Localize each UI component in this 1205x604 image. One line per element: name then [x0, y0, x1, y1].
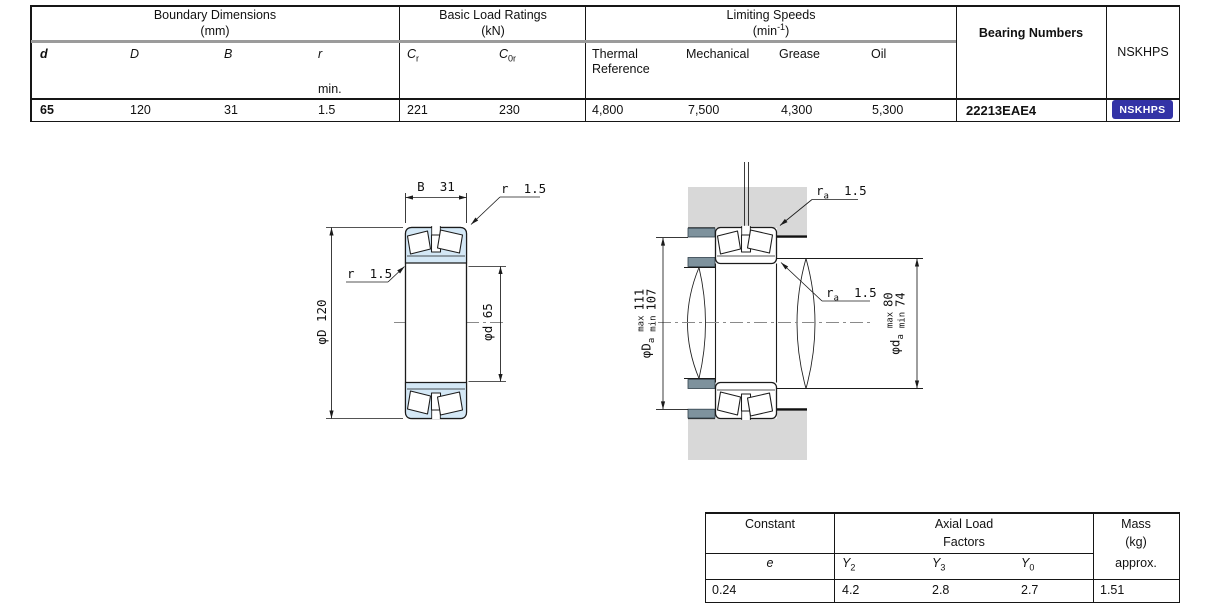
constant-header: Constant [705, 517, 835, 532]
table-border-bottom [30, 121, 1180, 123]
data-row-separator [30, 98, 1180, 100]
header-separator [31, 40, 956, 43]
value-grease: 4,300 [781, 103, 812, 118]
table-border-top [30, 5, 1180, 7]
col-header-cr: Cr [407, 47, 419, 62]
col-header-thermal: Thermal Reference [592, 47, 650, 77]
fillet-radius-label: ra 1.5 [816, 184, 867, 198]
chamfer-dimension-label: r 1.5 [347, 267, 392, 281]
data-row-separator [705, 579, 1180, 580]
value-B: 31 [224, 103, 238, 118]
value-y2: 4.2 [842, 583, 859, 598]
col-header-grease: Grease [779, 47, 820, 62]
col-header-r: r [318, 47, 322, 62]
col-header-y0: Y0 [1021, 556, 1034, 571]
table-divider [399, 5, 400, 122]
value-cr: 221 [407, 103, 428, 118]
mass-header-approx: approx. [1093, 556, 1179, 571]
value-y3: 2.8 [932, 583, 949, 598]
axial-load-header-line2: Factors [835, 535, 1093, 550]
bearing-bottom-section [716, 383, 777, 421]
chamfer-dimension-label: r 1.5 [501, 182, 546, 196]
col-header-r-min: min. [318, 82, 342, 97]
value-oil: 5,300 [872, 103, 903, 118]
value-c0r: 230 [499, 103, 520, 118]
col-header-oil: Oil [871, 47, 886, 62]
bearing-top-section [716, 226, 777, 264]
limiting-speeds-unit: (min-1) [586, 24, 956, 39]
nskhps-column-header: NSKHPS [1108, 45, 1178, 60]
header-separator [705, 553, 1093, 554]
table-border-bottom [705, 602, 1180, 604]
col-header-y2: Y2 [842, 556, 855, 571]
value-y0: 2.7 [1021, 583, 1038, 598]
col-header-B: B [224, 47, 232, 62]
mass-header: Mass [1093, 517, 1179, 532]
table-border-left [30, 5, 32, 122]
fillet-radius-label: ra 1.5 [826, 286, 877, 300]
nskhps-badge: NSKHPS [1112, 100, 1173, 119]
col-header-e: e [705, 556, 835, 571]
col-header-c0r: C0r [499, 47, 516, 62]
table-divider [956, 5, 957, 122]
value-r-min: 1.5 [318, 103, 335, 118]
basic-load-ratings-header: Basic Load Ratings [401, 8, 585, 23]
value-mechanical: 7,500 [688, 103, 719, 118]
mass-header-unit: (kg) [1093, 535, 1179, 550]
value-thermal: 4,800 [592, 103, 623, 118]
technical-drawings [0, 140, 1205, 480]
table-border-top [705, 512, 1180, 514]
axial-load-header: Axial Load [835, 517, 1093, 532]
table-divider [1106, 5, 1107, 122]
col-header-D: D [130, 47, 139, 62]
value-D: 120 [130, 103, 151, 118]
value-mass: 1.51 [1100, 583, 1124, 598]
bearing-numbers-header: Bearing Numbers [958, 26, 1104, 41]
bore-diameter-label: φd 65 [481, 290, 495, 354]
bearing-number-value: 22213EAE4 [966, 103, 1036, 118]
outer-diameter-label: φD 120 [315, 290, 329, 354]
shaft-abutment-diameter-label: φda max80 min74 [882, 278, 909, 368]
width-dimension-label: B 31 [404, 180, 468, 194]
boundary-dimensions-unit: (mm) [60, 24, 370, 39]
basic-load-ratings-unit: (kN) [401, 24, 585, 39]
catalog-page: Boundary Dimensions (mm) Basic Load Rati… [0, 0, 1205, 604]
table-border-right [1179, 5, 1181, 122]
col-header-y3: Y3 [932, 556, 945, 571]
boundary-dimensions-header: Boundary Dimensions [60, 8, 370, 23]
col-header-mechanical: Mechanical [686, 47, 749, 62]
value-d: 65 [40, 103, 54, 118]
col-header-d: d [40, 47, 48, 62]
housing-abutment-diameter-label: φDa max111 min107 [633, 278, 660, 368]
abutment-shoulders [688, 228, 715, 418]
limiting-speeds-header: Limiting Speeds [586, 8, 956, 23]
value-e: 0.24 [712, 583, 736, 598]
bearing-section-drawing [326, 193, 540, 419]
